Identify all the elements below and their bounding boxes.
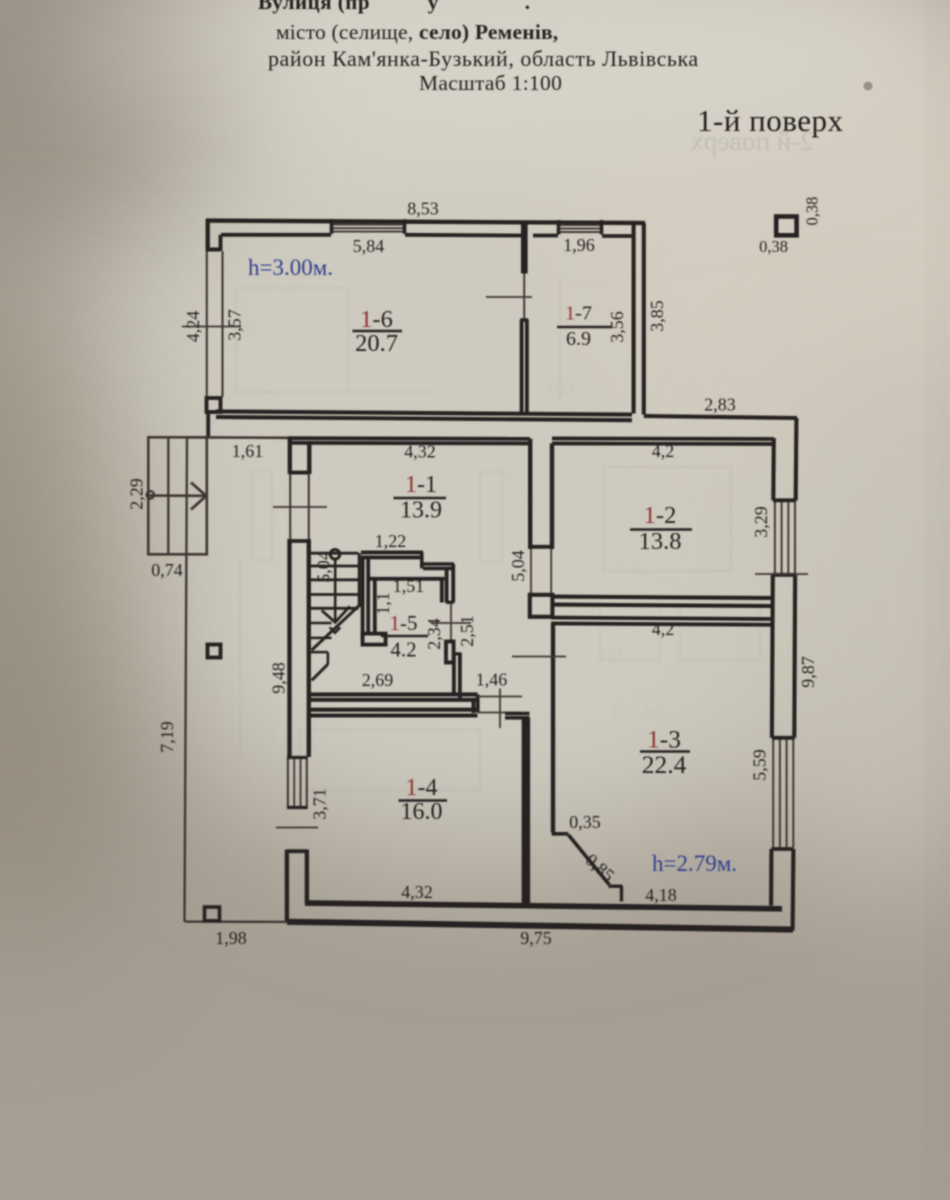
svg-text:1,98: 1,98 bbox=[215, 928, 247, 948]
svg-text:3,85: 3,85 bbox=[647, 300, 667, 332]
svg-text:5,04: 5,04 bbox=[313, 551, 333, 583]
svg-text:2,83: 2,83 bbox=[704, 395, 736, 415]
svg-text:2,51: 2,51 bbox=[457, 615, 477, 647]
svg-text:13.8: 13.8 bbox=[639, 528, 682, 555]
svg-text:h=3.00м.: h=3.00м. bbox=[248, 255, 333, 280]
svg-text:5,04: 5,04 bbox=[508, 550, 528, 582]
svg-text:1-6: 1-6 bbox=[360, 306, 393, 333]
svg-text:9,87: 9,87 bbox=[798, 656, 818, 688]
svg-text:район Кам'янка-Бузький, област: район Кам'янка-Бузький, область Львівськ… bbox=[268, 46, 699, 71]
svg-text:4.2: 4.2 bbox=[390, 638, 416, 662]
svg-text:1-7: 1-7 bbox=[565, 303, 592, 325]
svg-text:1,96: 1,96 bbox=[563, 235, 595, 255]
svg-text:9,48: 9,48 bbox=[268, 662, 288, 694]
svg-text:місто (селище, село) Ременів,: місто (селище, село) Ременів, bbox=[276, 20, 558, 44]
svg-text:2-й поверх: 2-й поверх bbox=[690, 126, 814, 156]
svg-text:Масштаб 1:100: Масштаб 1:100 bbox=[419, 71, 562, 95]
svg-text:1,22: 1,22 bbox=[375, 531, 407, 551]
svg-text:4,2: 4,2 bbox=[652, 441, 675, 461]
svg-text:0,38: 0,38 bbox=[802, 197, 821, 226]
svg-text:1-4: 1-4 bbox=[406, 775, 438, 801]
svg-text:6.9: 6.9 bbox=[566, 328, 591, 350]
svg-text:ПЗ: ПЗ bbox=[600, 644, 622, 664]
svg-text:2,34: 2,34 bbox=[424, 618, 444, 650]
svg-text:4,2: 4,2 bbox=[652, 619, 675, 639]
svg-text:3,56: 3,56 bbox=[607, 311, 627, 343]
svg-text:8,53: 8,53 bbox=[407, 199, 439, 219]
svg-text:22.4: 22.4 bbox=[642, 750, 687, 779]
svg-text:1-5: 1-5 bbox=[390, 611, 418, 635]
svg-text:7,19: 7,19 bbox=[157, 721, 177, 753]
svg-text:0,35: 0,35 bbox=[569, 812, 601, 832]
svg-text:5,59: 5,59 bbox=[749, 749, 769, 781]
svg-text:20.7: 20.7 bbox=[355, 330, 398, 357]
svg-text:1,51: 1,51 bbox=[393, 576, 425, 596]
svg-text:4,32: 4,32 bbox=[404, 442, 436, 462]
svg-text:5,84: 5,84 bbox=[353, 236, 385, 256]
svg-text:16.0: 16.0 bbox=[401, 799, 443, 825]
svg-text:1,61: 1,61 bbox=[232, 441, 264, 461]
svg-text:4,32: 4,32 bbox=[401, 882, 433, 902]
svg-text:3,57: 3,57 bbox=[224, 309, 244, 341]
svg-text:1,46: 1,46 bbox=[476, 670, 508, 690]
svg-text:8-2 АО: 8-2 АО bbox=[612, 702, 666, 722]
svg-text:0,74: 0,74 bbox=[151, 560, 183, 580]
svg-text:4,24: 4,24 bbox=[183, 311, 203, 343]
svg-text:1-1: 1-1 bbox=[405, 472, 437, 498]
svg-text:h=2.79м.: h=2.79м. bbox=[652, 851, 737, 876]
svg-text:13.9: 13.9 bbox=[400, 498, 442, 524]
svg-text:19.6: 19.6 bbox=[545, 378, 580, 400]
svg-text:1-2: 1-2 bbox=[644, 502, 677, 529]
svg-text:4,18: 4,18 bbox=[645, 885, 677, 905]
svg-text:0,38: 0,38 bbox=[759, 237, 788, 256]
svg-text:9,75: 9,75 bbox=[520, 928, 552, 948]
svg-text:2,69: 2,69 bbox=[362, 670, 394, 690]
svg-text:3,29: 3,29 bbox=[751, 506, 771, 538]
svg-text:2,29: 2,29 bbox=[126, 478, 146, 510]
svg-text:3,71: 3,71 bbox=[309, 788, 329, 820]
